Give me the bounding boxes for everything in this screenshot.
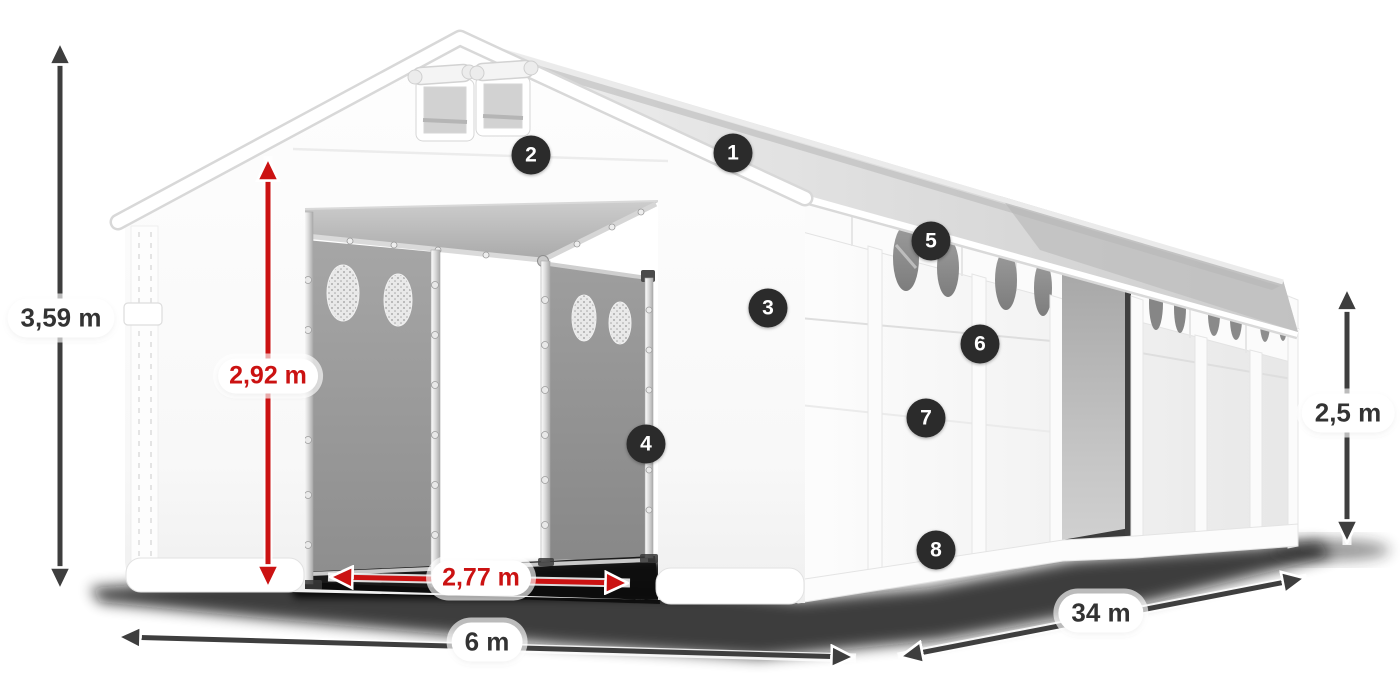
label-door-width: 2,77 m	[431, 561, 531, 596]
interior-partition-2	[549, 264, 647, 560]
entrance-post	[645, 278, 653, 558]
part-marker-8[interactable]: 8	[917, 531, 956, 570]
part-marker-2[interactable]: 2	[512, 136, 551, 175]
label-front-width: 6 m	[452, 623, 523, 662]
front-left-skirt	[126, 558, 304, 592]
strap-buckle	[124, 303, 162, 325]
part-marker-3[interactable]: 3	[749, 289, 788, 328]
part-marker-7[interactable]: 7	[907, 399, 946, 438]
part-marker-1[interactable]: 1	[714, 134, 753, 173]
entrance-post	[304, 212, 313, 584]
tent-illustration	[0, 0, 1400, 700]
interior-partition-1	[306, 240, 434, 588]
tent-dimension-diagram: 3,59 m 2,92 m 2,77 m 6 m 34 m 2,5 m 1 2 …	[0, 0, 1400, 700]
part-marker-5[interactable]: 5	[912, 222, 951, 261]
mesh-window-oval	[384, 274, 412, 326]
mesh-window-oval	[572, 295, 596, 341]
label-side-length: 34 m	[1058, 594, 1143, 633]
mesh-window-oval	[327, 265, 359, 321]
label-door-height: 2,92 m	[218, 359, 318, 394]
part-marker-6[interactable]: 6	[961, 325, 1000, 364]
roof-vent-windows	[408, 60, 538, 137]
tent-interior	[298, 201, 660, 604]
mesh-window-oval	[609, 302, 631, 344]
label-side-height: 2,5 m	[1302, 394, 1395, 433]
entrance-post	[541, 261, 550, 562]
front-right-skirt	[656, 568, 804, 604]
part-marker-4[interactable]: 4	[627, 425, 666, 464]
label-total-height: 3,59 m	[8, 299, 115, 338]
